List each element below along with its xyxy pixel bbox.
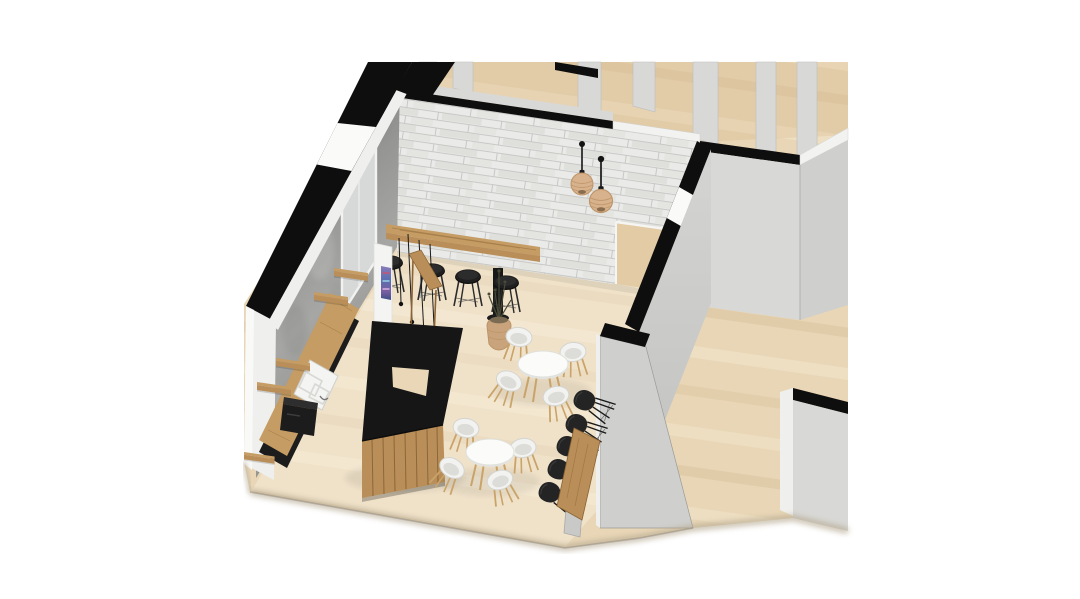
wall-column xyxy=(756,62,776,158)
drinks-fridge xyxy=(381,266,391,300)
partition-face xyxy=(800,140,848,320)
cord-bulb xyxy=(399,302,403,306)
wall-column xyxy=(633,62,655,112)
wall-end-face xyxy=(780,388,793,516)
wall-column xyxy=(693,62,718,145)
partition-face xyxy=(793,400,848,531)
partition-face xyxy=(700,151,800,320)
round-table-top xyxy=(518,351,568,377)
round-table-top xyxy=(466,439,514,465)
fridge-shelf xyxy=(383,280,390,282)
pot-soil xyxy=(490,317,508,324)
render-canvas xyxy=(0,0,1080,599)
wall-column xyxy=(453,62,473,93)
fridge-shelf xyxy=(383,288,390,290)
fridge-shelf xyxy=(383,272,390,274)
floorplan-render xyxy=(0,0,1080,599)
pillar-and-fridge xyxy=(374,243,392,334)
